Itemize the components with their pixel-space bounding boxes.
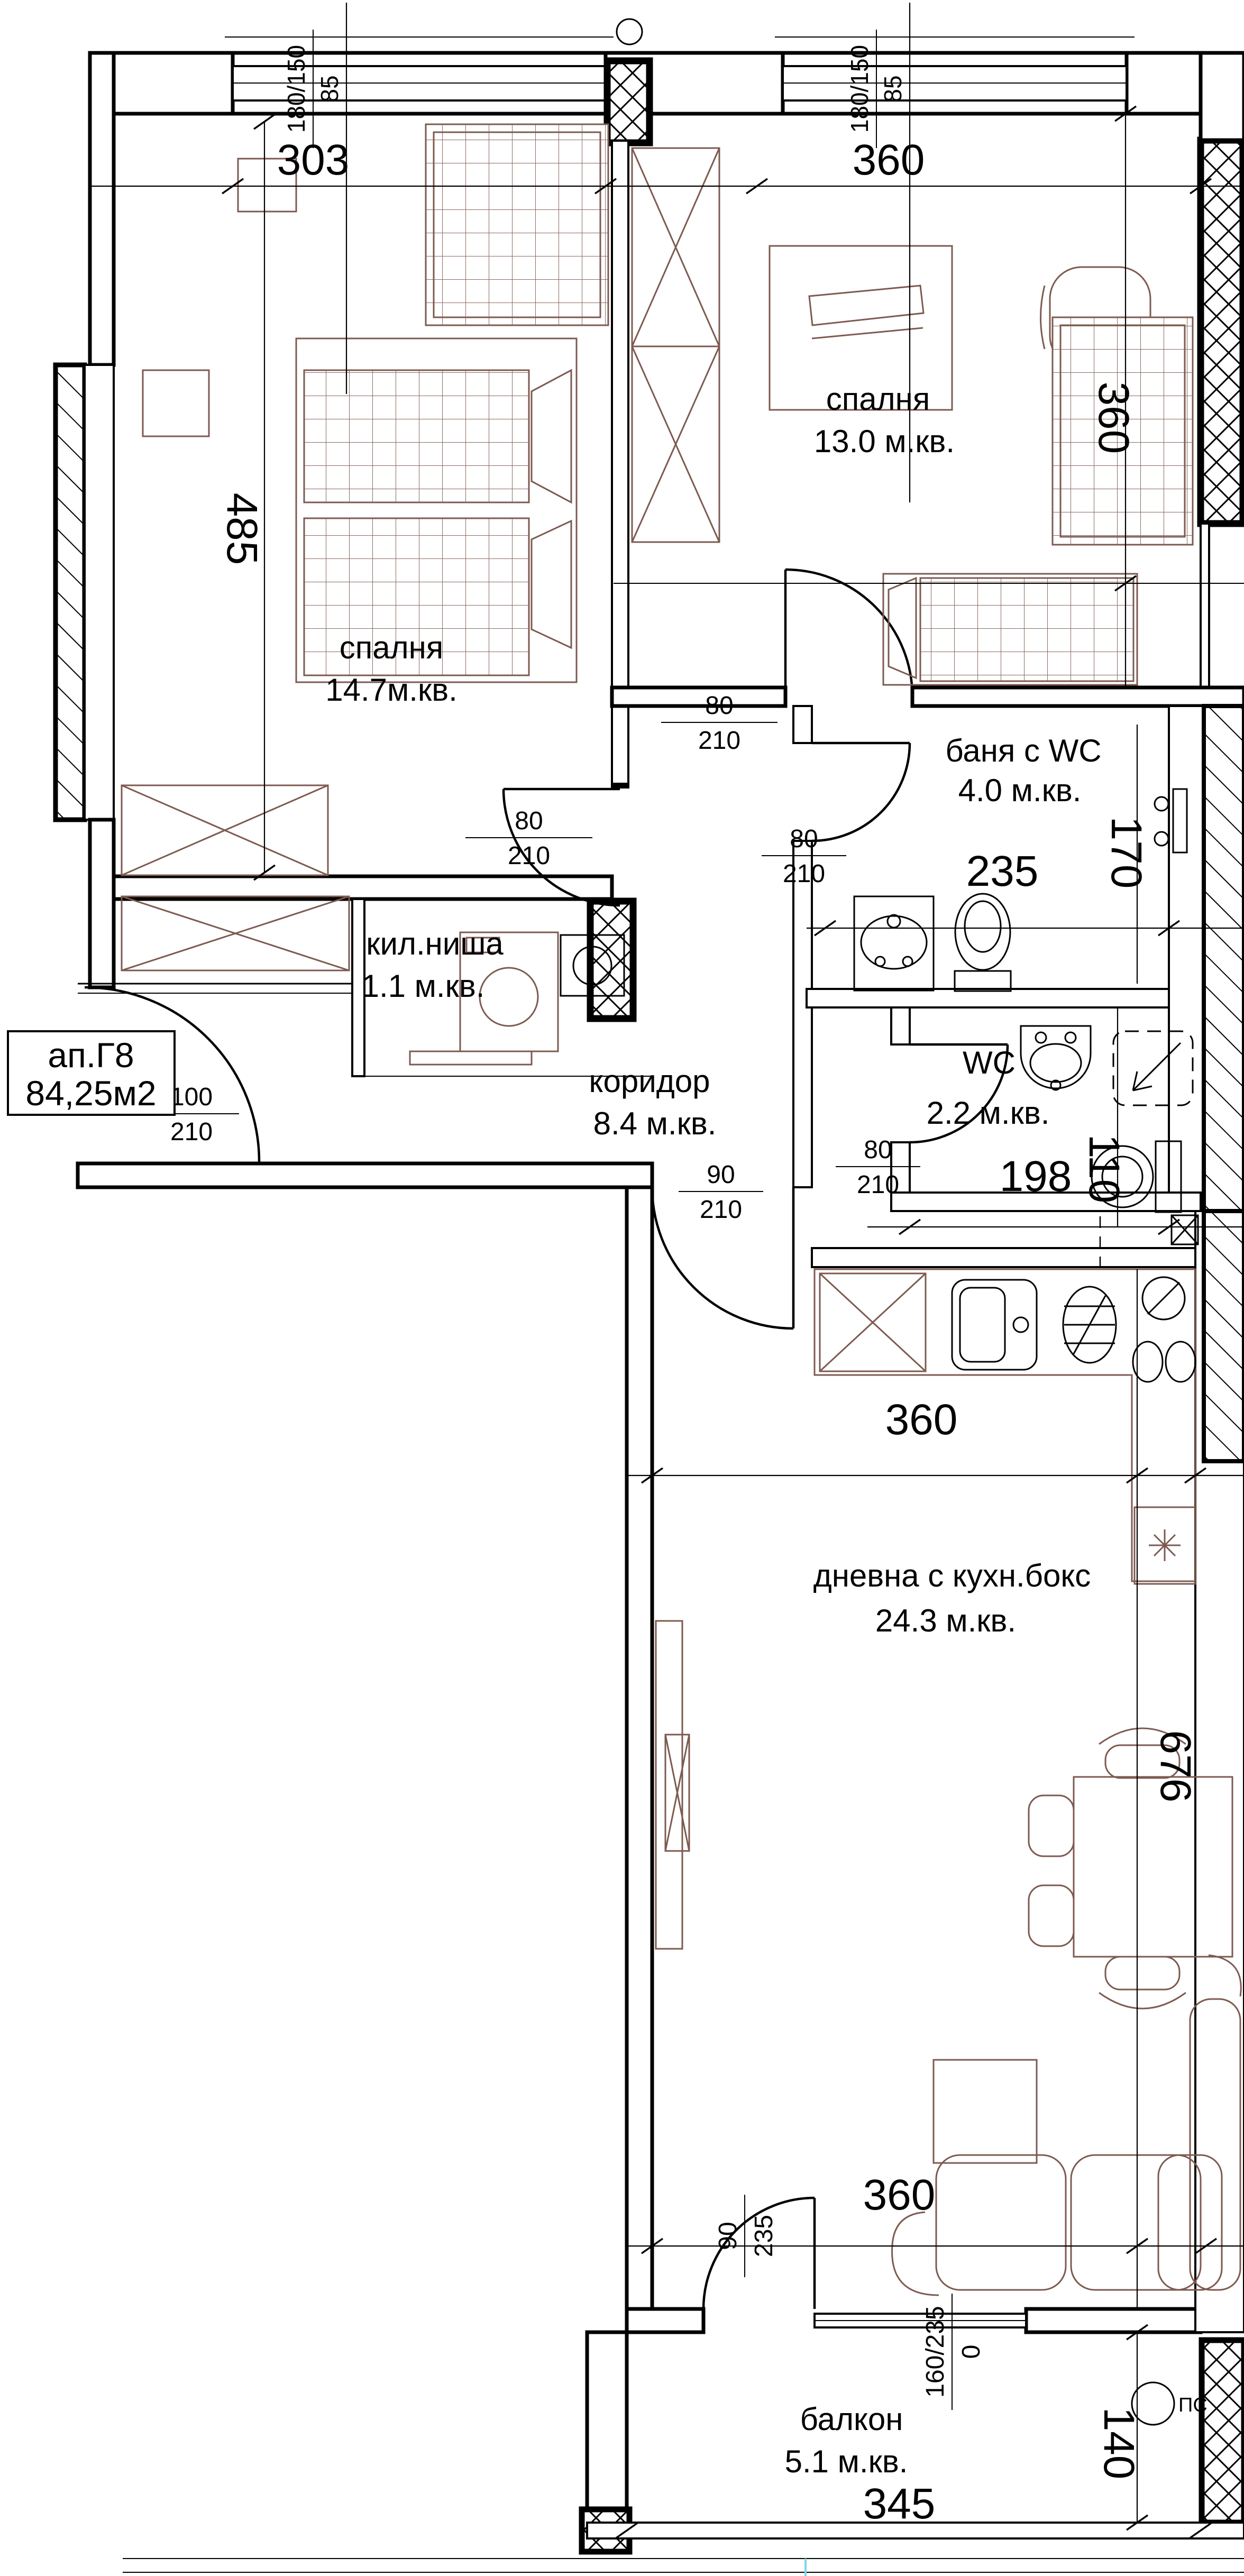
room-living-area: 24.3 м.кв. (875, 1603, 1016, 1638)
column-corridor (590, 901, 633, 1019)
label-door-kitchen: 90 210 (679, 1161, 763, 1224)
floor-plan-svg: ПС 303 360 485 360 235 170 198 110 (0, 0, 1244, 2576)
dim-bath-170: 170 (1102, 817, 1150, 889)
svg-text:180/150: 180/150 (282, 45, 310, 133)
kitchen-counter (815, 1216, 1195, 1581)
svg-text:85: 85 (316, 75, 343, 102)
room-bath-area: 4.0 м.кв. (958, 773, 1082, 808)
dim-bath-235: 235 (966, 847, 1039, 895)
svg-text:80: 80 (705, 692, 733, 720)
svg-text:210: 210 (783, 860, 825, 888)
svg-text:100: 100 (170, 1083, 213, 1111)
column-balcony-right (1202, 2340, 1244, 2523)
floor-plan-page: ПС 303 360 485 360 235 170 198 110 (0, 0, 1244, 2576)
svg-text:210: 210 (857, 1171, 899, 1199)
svg-text:90: 90 (707, 1161, 735, 1189)
room-bedroom2-area: 13.0 м.кв. (814, 424, 955, 459)
svg-text:80: 80 (790, 825, 818, 853)
apartment-id: ап.Г8 (48, 1035, 134, 1075)
door-arc-bedroom2 (785, 570, 912, 696)
boiler-box (1172, 1215, 1198, 1244)
right-wall-shaft (1201, 140, 1243, 524)
room-niche-area: 1.1 м.кв. (362, 968, 485, 1004)
room-bedroom1-name: спалня (340, 630, 444, 665)
svg-text:210: 210 (508, 842, 550, 870)
dim-balcony-345: 345 (863, 2480, 936, 2528)
room-corridor-name: коридор (589, 1064, 710, 1099)
svg-text:85: 85 (879, 75, 907, 102)
room-bedroom1-area: 14.7м.кв. (325, 672, 458, 708)
coffee-table (934, 2060, 1037, 2163)
wardrobe-bedroom2-x (632, 148, 719, 542)
svg-text:0: 0 (957, 2345, 985, 2359)
wc-sink (1021, 1026, 1091, 1090)
room-bath-name: баня с WC (945, 733, 1101, 768)
bath-toilet (955, 894, 1011, 991)
right-wall-insulation-living (1204, 1211, 1244, 1461)
cabinet-niche (122, 896, 349, 970)
wardrobe-bedroom1 (426, 124, 608, 325)
sofa (892, 1955, 1241, 2295)
svg-text:80: 80 (864, 1136, 892, 1164)
label-door-bedroom1: 80 210 (465, 807, 592, 870)
left-wall-insulation (56, 365, 85, 820)
label-window-balcony: 160/235 0 (921, 2294, 985, 2410)
apartment-area: 84,25м2 (25, 1074, 156, 1113)
ps-label: ПС (1178, 2394, 1208, 2416)
dim-balcony-140: 140 (1095, 2407, 1143, 2480)
nightstand-2 (143, 370, 209, 436)
dim-living-top-360: 360 (885, 1396, 958, 1444)
svg-text:235: 235 (750, 2215, 778, 2257)
column-top (607, 61, 650, 143)
room-balcony-name: балкон (800, 2401, 903, 2437)
room-balcony-area: 5.1 м.кв. (785, 2444, 908, 2479)
dim-living-676: 676 (1151, 1730, 1200, 1803)
room-wc-name: WC (963, 1045, 1016, 1080)
window-balcony (815, 2314, 1026, 2327)
fridge (1135, 1507, 1195, 1584)
room-corridor-area: 8.4 м.кв. (593, 1106, 717, 1141)
room-bedroom2-name: спалня (826, 381, 930, 417)
door-arc-bath (812, 743, 910, 841)
room-wc-area: 2.2 м.кв. (927, 1095, 1050, 1131)
room-living-name: дневна с кухн.бокс (813, 1558, 1091, 1593)
dim-living-bottom-360: 360 (863, 2171, 936, 2219)
svg-text:180/150: 180/150 (846, 45, 873, 133)
column-marker-icon (617, 19, 642, 44)
window-bedroom2 (775, 37, 1135, 100)
tv-stand (656, 1621, 689, 1949)
dim-wc-110: 110 (1080, 1134, 1128, 1204)
dim-bedroom2-360: 360 (1090, 382, 1138, 454)
svg-text:90: 90 (714, 2222, 742, 2250)
bed-bedroom2 (883, 574, 1137, 685)
label-window1: 180/150 85 (282, 30, 343, 148)
room-niche-name: кил.ниша (366, 926, 504, 961)
svg-text:160/235: 160/235 (921, 2306, 949, 2398)
dim-left-485: 485 (218, 493, 266, 565)
svg-text:210: 210 (700, 1196, 742, 1224)
dim-top-360: 360 (853, 136, 925, 184)
niche-shelf (410, 1051, 532, 1065)
right-wall-insulation-bath (1204, 706, 1244, 1211)
svg-text:210: 210 (698, 727, 740, 755)
apartment-id-box: ап.Г8 84,25м2 (8, 1031, 175, 1115)
svg-text:210: 210 (170, 1118, 213, 1146)
svg-text:80: 80 (515, 807, 543, 835)
bath-sink (854, 896, 934, 991)
dim-wc-198: 198 (1000, 1152, 1072, 1200)
label-window2: 180/150 85 (846, 30, 907, 148)
dresser-bedroom1 (122, 785, 328, 875)
